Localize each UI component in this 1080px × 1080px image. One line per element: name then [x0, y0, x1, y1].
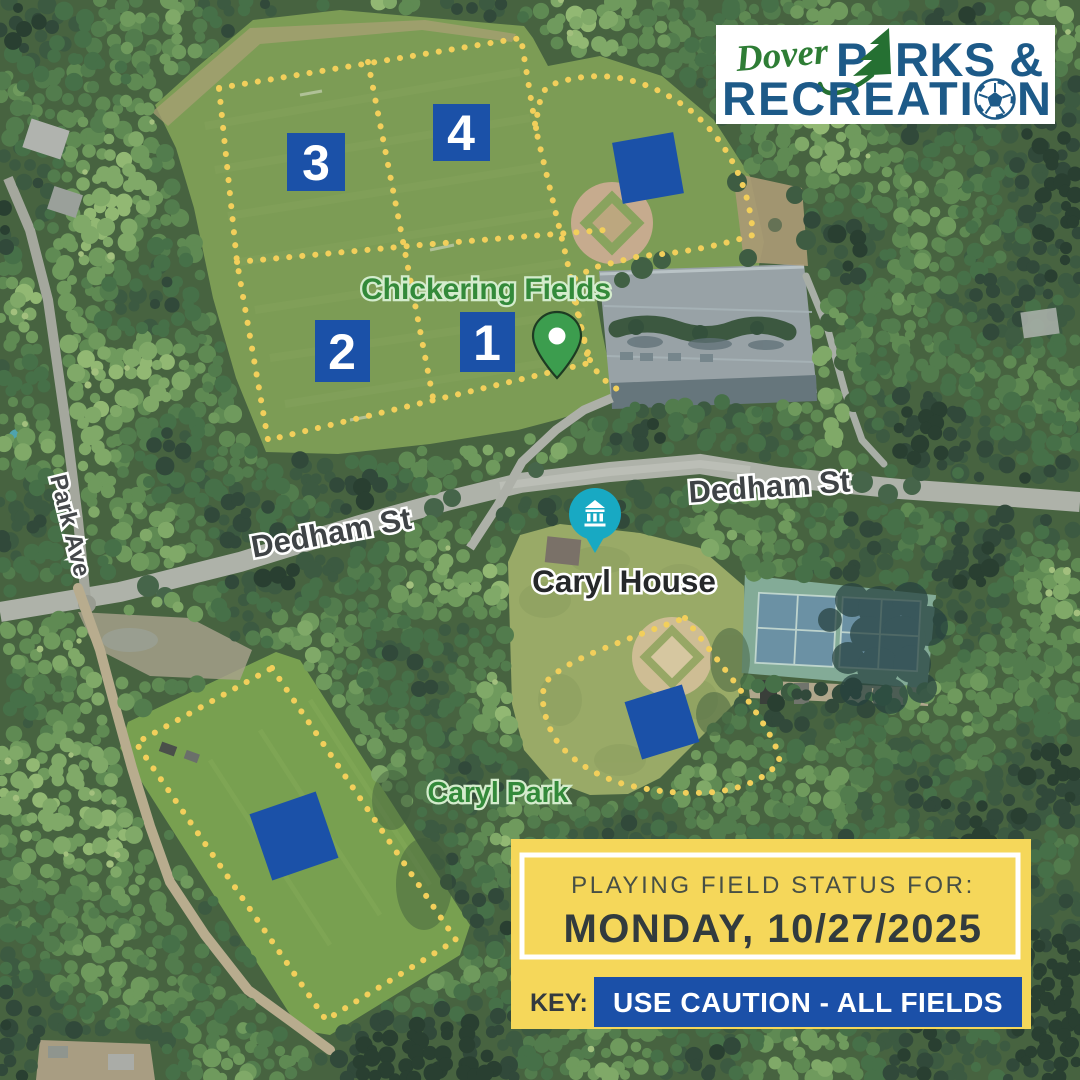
svg-text:N: N — [1017, 72, 1051, 125]
svg-text:KEY:: KEY: — [530, 989, 588, 1017]
svg-text:2: 2 — [328, 324, 356, 380]
svg-text:Caryl Park: Caryl Park — [427, 777, 568, 809]
svg-text:MONDAY, 10/27/2025: MONDAY, 10/27/2025 — [563, 907, 982, 951]
svg-text:Chickering Fields: Chickering Fields — [361, 273, 611, 306]
svg-text:3: 3 — [302, 135, 330, 191]
svg-text:4: 4 — [447, 105, 475, 161]
svg-text:RECREATI: RECREATI — [722, 72, 975, 125]
svg-text:1: 1 — [473, 315, 501, 371]
svg-text:PLAYING FIELD STATUS FOR:: PLAYING FIELD STATUS FOR: — [571, 872, 975, 899]
svg-text:Caryl House: Caryl House — [532, 563, 716, 599]
svg-text:USE CAUTION - ALL FIELDS: USE CAUTION - ALL FIELDS — [613, 987, 1003, 1018]
